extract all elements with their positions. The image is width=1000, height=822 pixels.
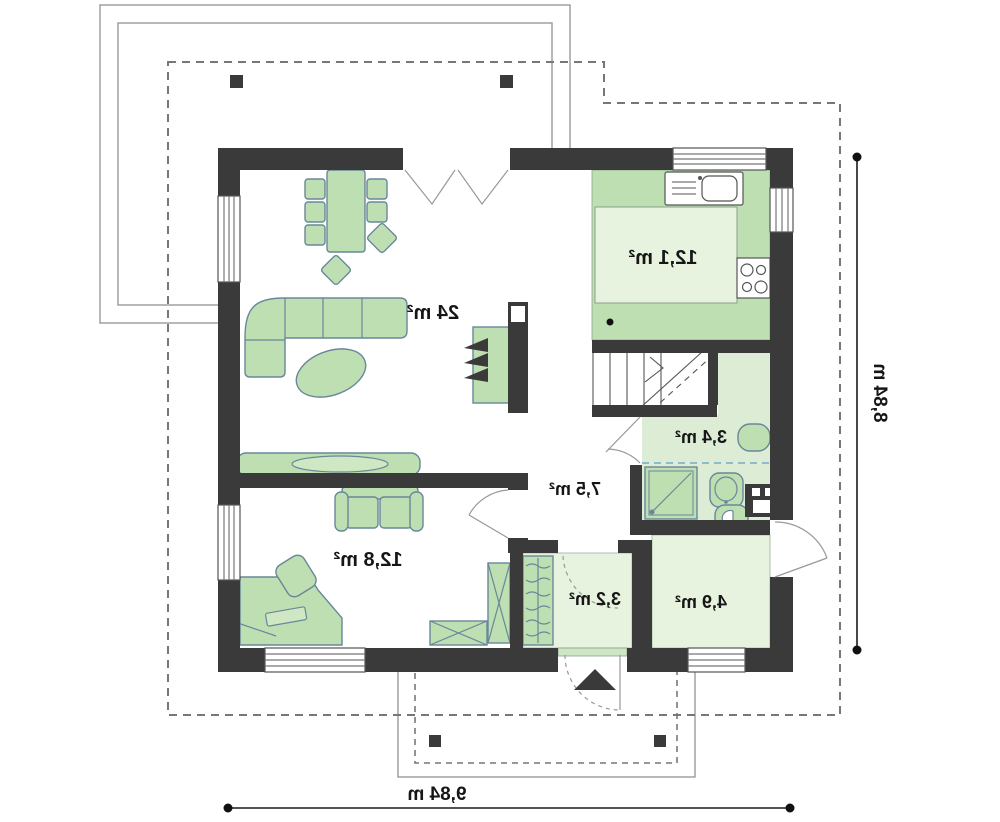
wall-segment <box>508 540 558 553</box>
tv-wall-niche <box>511 306 525 322</box>
dining-chair <box>305 225 325 245</box>
wall-segment <box>508 473 528 490</box>
living-room-window <box>218 196 240 282</box>
wall-segment <box>627 648 688 672</box>
wall-segment <box>592 405 717 417</box>
loveseat-armrest <box>335 492 348 531</box>
bathroom-area-label: 3,4 m² <box>675 427 727 447</box>
entrance-threshold <box>558 648 627 656</box>
loveseat-cushion <box>380 497 412 528</box>
washbasin-wall <box>738 424 770 451</box>
bedroom-bottom-window <box>265 648 365 672</box>
dimension-right: 8,84 m <box>853 153 891 655</box>
shower-drain-icon <box>650 510 655 515</box>
wall-segment <box>240 473 508 488</box>
utility-room-area-label: 4,9 m² <box>675 592 727 612</box>
dining-chair <box>305 202 325 222</box>
sideboard <box>237 453 420 475</box>
width-dimension-label: 9,84 m <box>407 784 466 805</box>
loveseat-armrest <box>410 492 423 531</box>
floor-plan-page: 24 m² 12,1 m² 3,4 m² 7,5 m² 12,8 m² 3,2 … <box>0 0 1000 822</box>
wall-segment <box>770 232 793 520</box>
terrace-post <box>230 75 243 88</box>
vestibule-area-label: 3,2 m² <box>569 589 621 609</box>
hall-area-label: 7,5 m² <box>549 479 601 499</box>
porch-post <box>429 735 441 747</box>
floor-drain-dot <box>607 319 614 326</box>
wall-segment <box>218 148 403 170</box>
dining-chair <box>367 202 387 222</box>
loveseat-cushion <box>346 497 378 528</box>
kitchen-area-label: 12,1 m² <box>628 247 697 269</box>
wall-segment <box>632 540 652 648</box>
wall-segment <box>708 353 718 405</box>
wall-segment <box>365 648 558 672</box>
kitchen-side-window <box>770 188 793 232</box>
wall-segment <box>510 148 673 170</box>
dining-table <box>327 170 365 252</box>
bedroom-area-label: 12,8 m² <box>333 549 402 571</box>
terrace-post <box>500 75 513 88</box>
wall-segment <box>745 484 750 517</box>
entrance-arrow-icon <box>574 669 616 690</box>
dining-chair <box>367 179 387 199</box>
floor-plan-drawing: 24 m² 12,1 m² 3,4 m² 7,5 m² 12,8 m² 3,2 … <box>0 0 1000 822</box>
wall-segment <box>218 148 240 196</box>
wall-segment <box>770 577 793 672</box>
sink-bowl <box>702 176 737 201</box>
porch-post <box>654 735 666 747</box>
washbasin <box>710 473 743 507</box>
wall-segment <box>630 520 770 535</box>
wall-segment <box>510 553 523 648</box>
wall-segment <box>218 648 265 672</box>
kitchen-window <box>673 148 766 170</box>
staircase <box>593 352 712 410</box>
living-room-area-label: 24 m² <box>407 302 460 324</box>
depth-dimension-label: 8,84 m <box>869 363 890 422</box>
wall-segment <box>630 465 642 520</box>
wall-segment <box>592 340 770 353</box>
coat-closet <box>523 556 553 645</box>
wall-segment <box>218 282 240 505</box>
bedroom-side-window <box>218 505 240 580</box>
wall-segment <box>770 148 793 188</box>
sideboard-tray <box>292 456 388 472</box>
faucet-icon <box>698 176 702 180</box>
dimension-bottom: 9,84 m <box>224 784 795 813</box>
utility-bottom-window <box>688 648 745 672</box>
dining-chair <box>305 179 325 199</box>
